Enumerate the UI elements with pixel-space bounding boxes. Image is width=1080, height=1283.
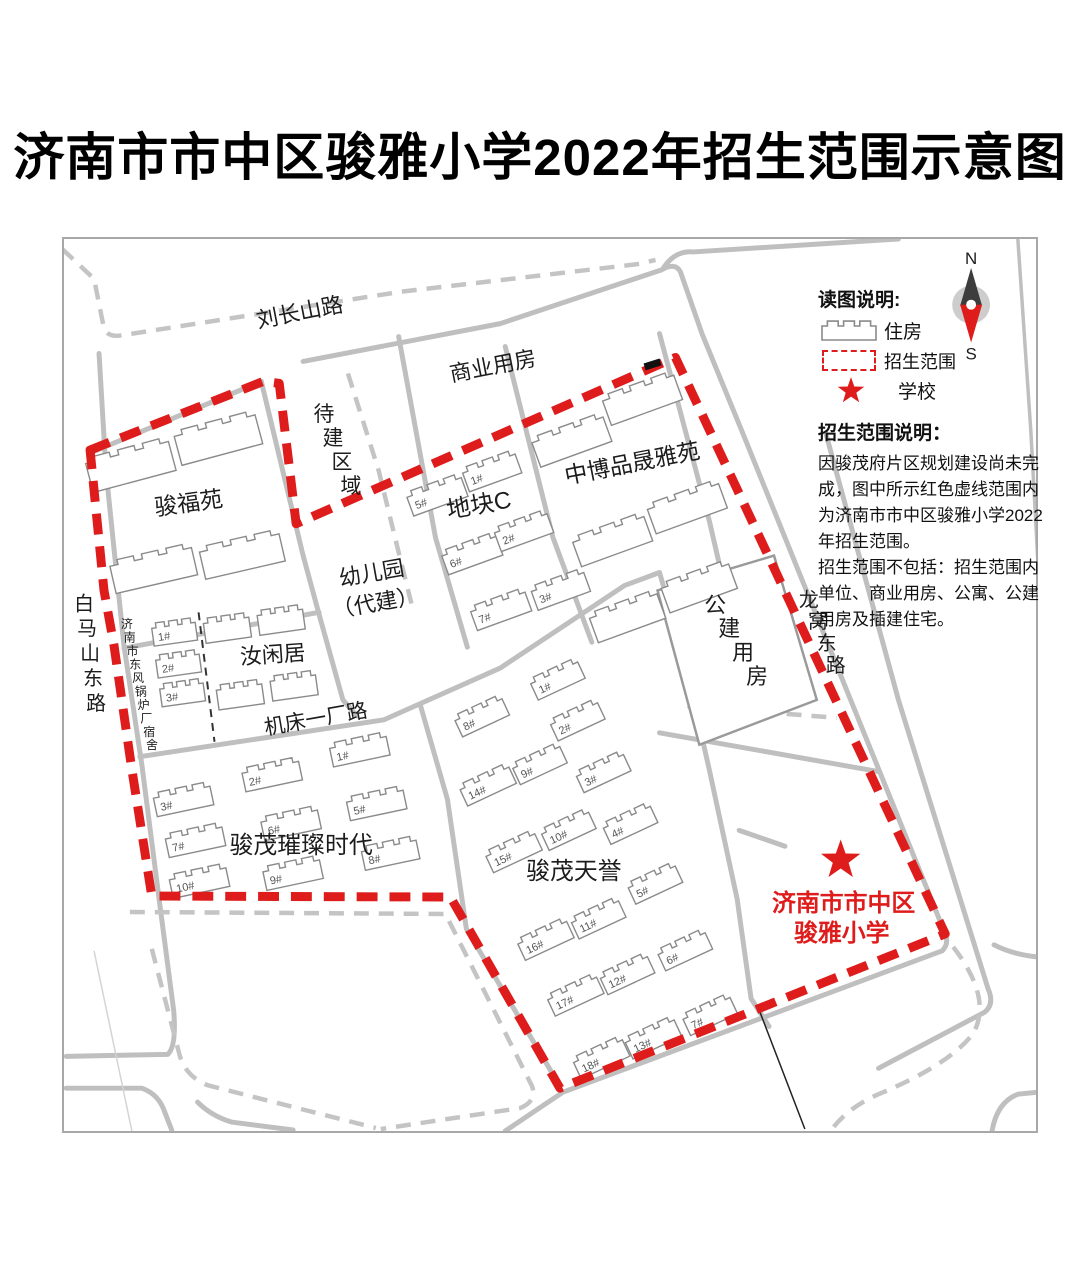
page-title: 济南市市中区骏雅小学2022年招生范围示意图	[0, 116, 1080, 190]
legend-overlay: 读图说明: 住房 招生范围 学校 招生范围说明： 因骏茂府片区规划建设尚未完 成…	[62, 237, 1038, 1133]
enrollment-range-icon	[822, 350, 876, 371]
note-line: 招生范围不包括：招生范围内	[818, 555, 1039, 581]
note-line: 年招生范围。	[818, 529, 920, 555]
note-line: 成，图中所示红色虚线范围内	[818, 477, 1039, 503]
legend-housing-label: 住房	[884, 322, 922, 344]
note-line: 单位、商业用房、公寓、公建	[818, 581, 1039, 607]
housing-icon	[819, 317, 879, 343]
legend-school-label: 学校	[898, 382, 936, 404]
note-line: 因骏茂府片区规划建设尚未完	[818, 451, 1039, 477]
page: { "title": "济南市市中区骏雅小学2022年招生范围示意图", "le…	[0, 0, 1080, 1283]
school-star-legend-icon	[836, 376, 866, 406]
note-title: 招生范围说明：	[818, 423, 951, 445]
legend-range-label: 招生范围	[884, 352, 956, 373]
note-line: 用房及插建住宅。	[818, 607, 954, 633]
note-line: 为济南市市中区骏雅小学2022	[818, 503, 1043, 529]
legend-title: 读图说明:	[818, 290, 900, 312]
